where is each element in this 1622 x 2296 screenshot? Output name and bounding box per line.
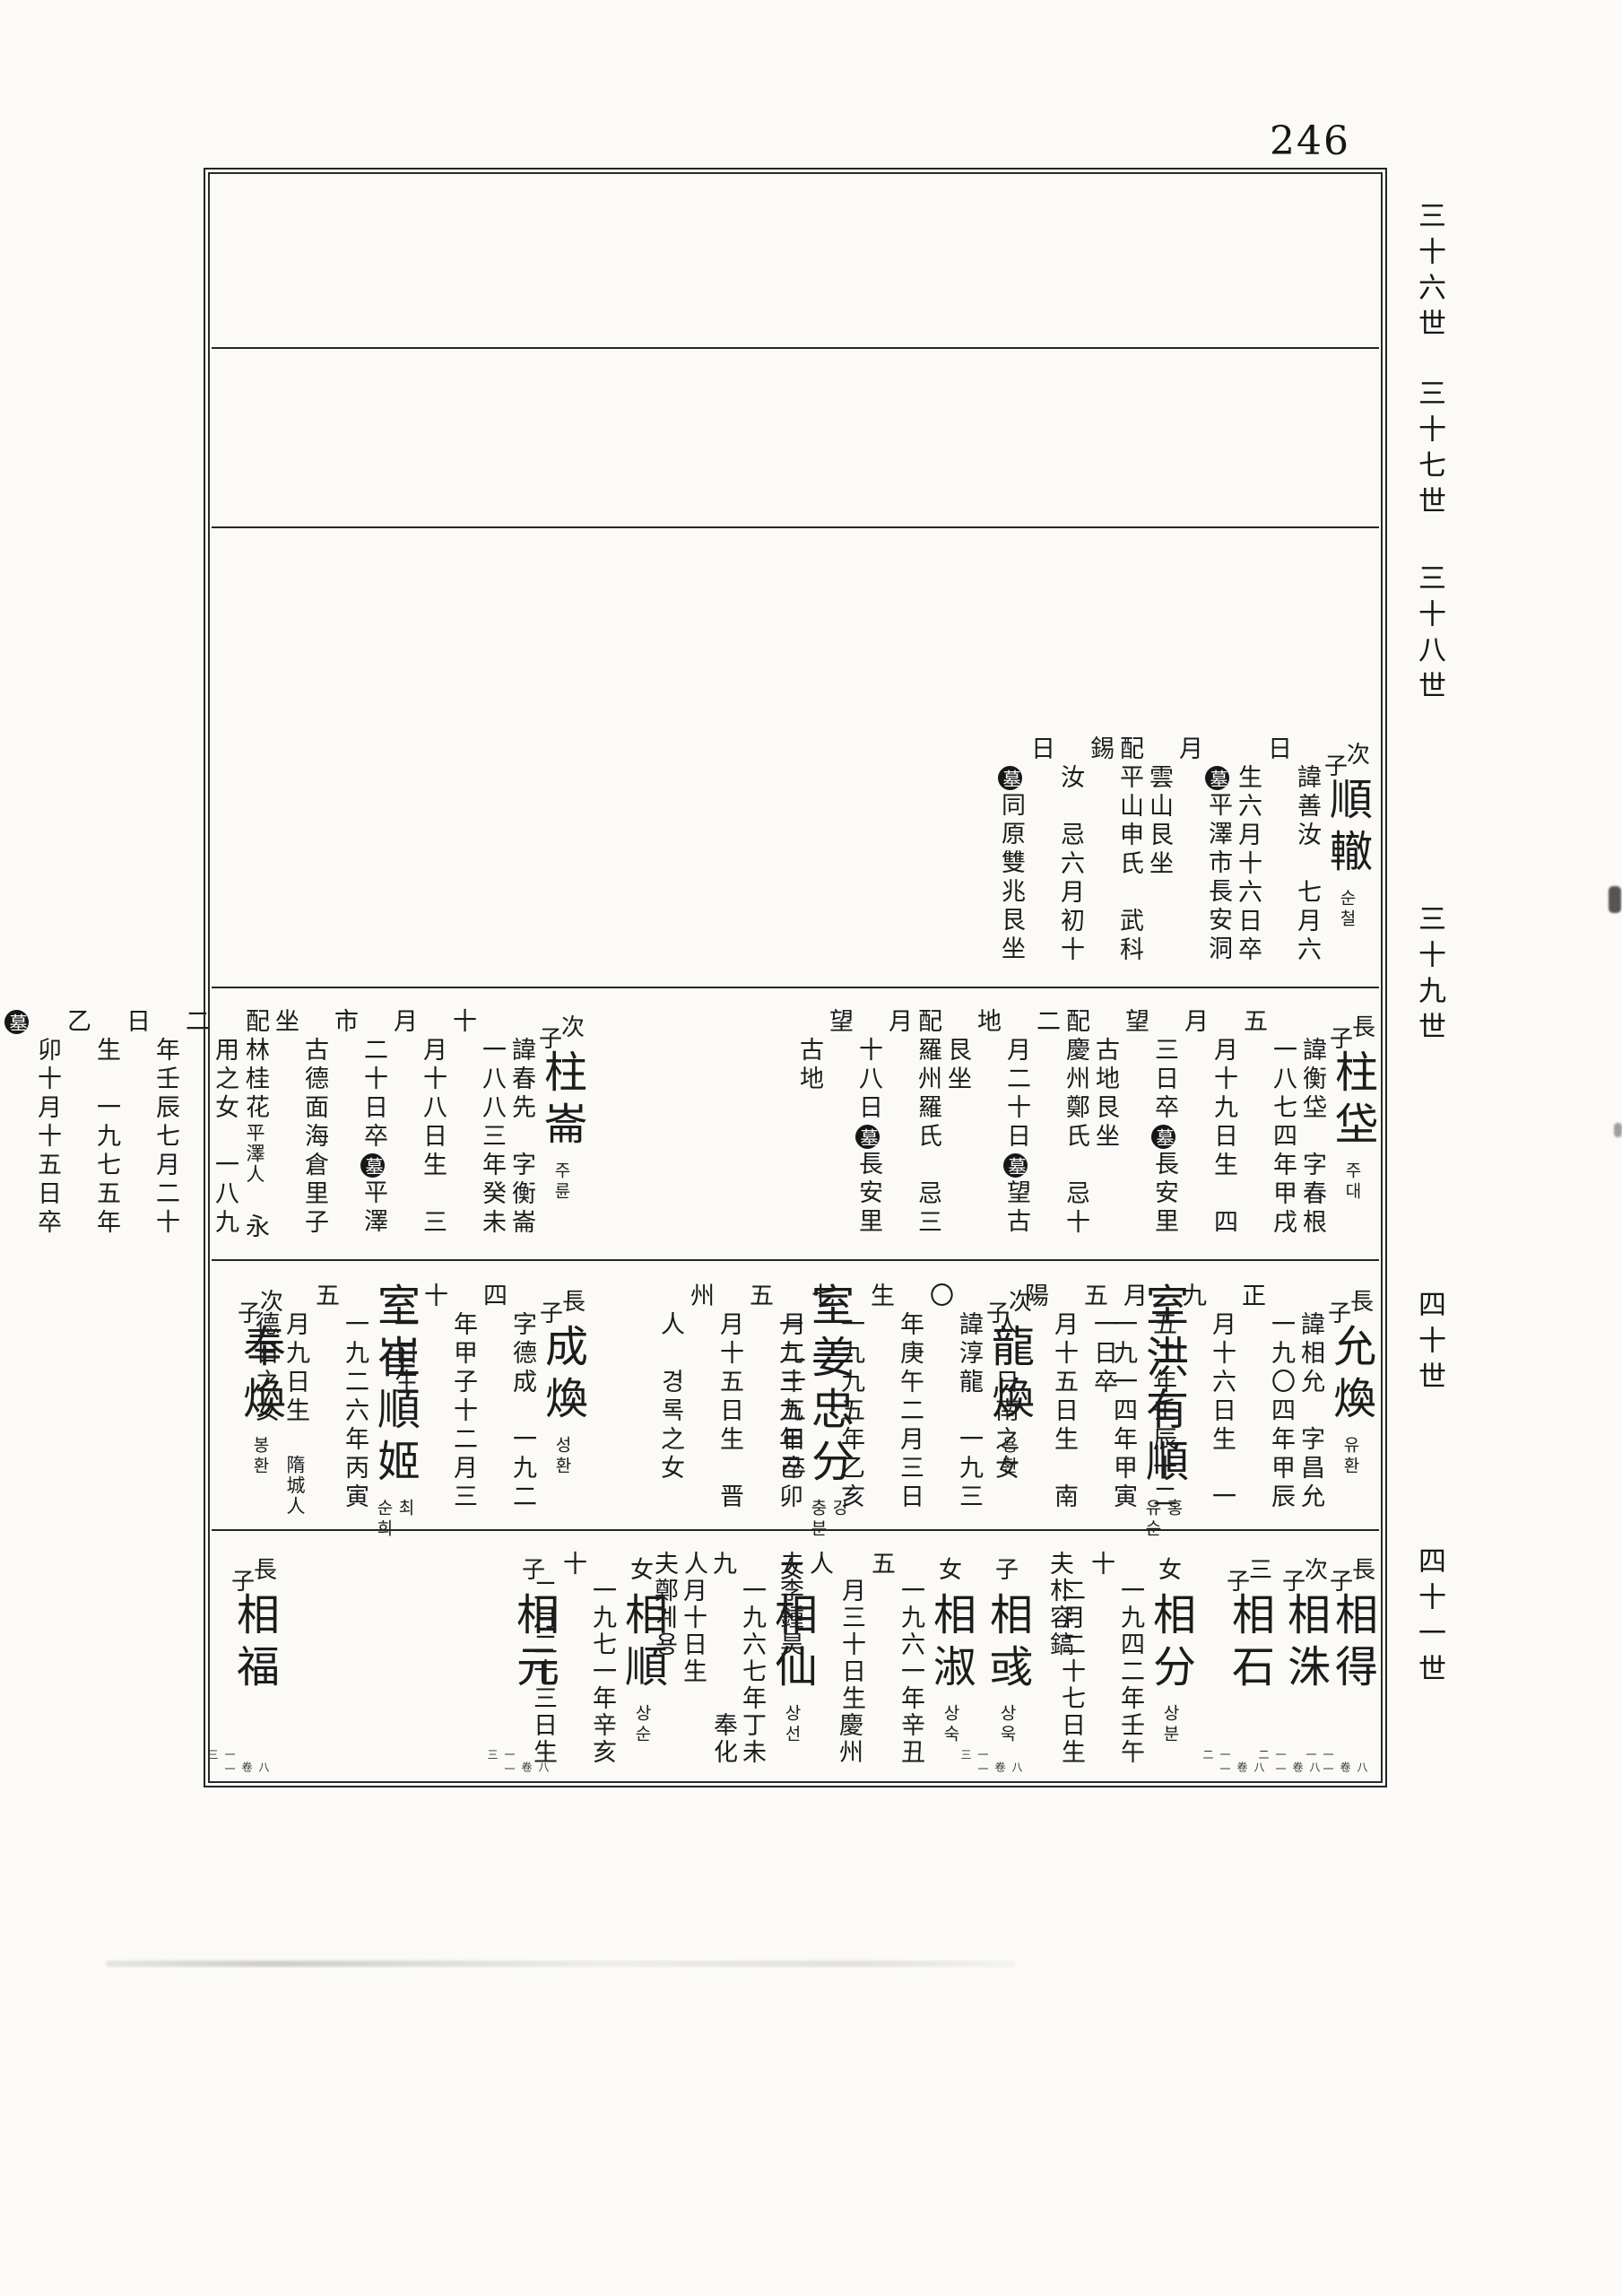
- detail-column: 一九六一年辛丑五: [866, 1551, 925, 1783]
- generation-label-38: 三十八世: [1409, 563, 1450, 707]
- entry-header-char: 子: [1328, 1301, 1351, 1326]
- hangul-gloss: 상분: [1159, 1704, 1181, 1745]
- detail-column: 諱衡垈 字春根: [1297, 1008, 1327, 1259]
- hangul-gloss-column: 순철: [1336, 889, 1357, 930]
- person-name: 成煥: [537, 1324, 587, 1428]
- detail-column: 一九四二年壬午十: [1086, 1551, 1145, 1783]
- hangul-gloss-column: 주대: [1341, 1161, 1363, 1203]
- entry-header: 長子: [1327, 1017, 1377, 1044]
- detail-column: 月十九日生 四月: [1179, 1008, 1238, 1259]
- name-column: 子相元: [508, 1560, 559, 1696]
- detail-column: 古地: [794, 1008, 824, 1259]
- name-column: 子相彧상욱: [982, 1560, 1032, 1745]
- entry-header-char: 女: [939, 1558, 962, 1583]
- grave-marker-icon: 墓: [4, 1010, 29, 1034]
- entry-details: 諱善汝 七月六日 生六月十六日卒 墓平澤市長安洞月 雲山艮坐配平山申氏 武科錫 …: [996, 735, 1322, 987]
- entry-header: 次子: [1279, 1560, 1330, 1587]
- hangul-gloss: 상순: [631, 1704, 653, 1745]
- hangul-gloss-column: 주륜: [551, 1161, 572, 1203]
- hangul-gloss: 유환: [1340, 1436, 1361, 1477]
- detail-column: 卯十月十五日卒墓: [3, 1008, 62, 1259]
- detail-column: 艮坐: [942, 1008, 972, 1259]
- detail-column: 一九七一年辛亥十: [558, 1551, 617, 1783]
- grave-marker-icon: 墓: [360, 1153, 385, 1178]
- person-name: 柱垈: [1327, 1049, 1377, 1153]
- hangul-gloss: 상숙: [940, 1704, 961, 1745]
- detail-column: 月十八日生 三月: [388, 1008, 447, 1259]
- person-name: 相福: [229, 1592, 279, 1696]
- person-name: 室洪有順: [1138, 1283, 1188, 1491]
- scan-artifact-streak: [106, 1961, 1016, 1967]
- detail-column: 三日卒墓長安里望: [1120, 1008, 1179, 1259]
- name-column: 次子奉煥봉환: [235, 1291, 285, 1477]
- generation-label-36: 三十六世: [1409, 201, 1450, 344]
- name-column: 次子龍煥용환: [984, 1291, 1034, 1477]
- grave-marker-icon: 墓: [1151, 1125, 1175, 1149]
- detail-column: 夫朴容鎬: [1045, 1551, 1074, 1658]
- entry-header-char: 子: [1330, 1570, 1353, 1595]
- hangul-gloss-column: 상선: [781, 1704, 802, 1745]
- person-name: 順轍: [1322, 777, 1372, 881]
- detail-column: 配平山申氏 武科錫: [1085, 735, 1144, 987]
- entry-header-char: 長: [1352, 1015, 1375, 1040]
- entry-header-char: 次: [260, 1290, 283, 1315]
- detail-column: 月十五日生 晋州: [685, 1283, 744, 1529]
- detail-column: 古德面海倉里子坐: [270, 1008, 329, 1259]
- person-name: 相元: [508, 1592, 559, 1696]
- hangul-gloss: 봉환: [249, 1436, 271, 1477]
- detail-column: 諱相允 字昌允: [1296, 1283, 1325, 1529]
- detail-column: 奉化人: [679, 1551, 738, 1783]
- person-name: 室姜忠分: [803, 1283, 854, 1491]
- entry-details: 諱衡垈 字春根 一八七四年甲戌五 月十九日生 四月 三日卒墓長安里望 古地艮坐配…: [794, 1008, 1327, 1259]
- detail-column: 一九一四年甲寅五: [1079, 1283, 1138, 1529]
- entry-header: 女: [1145, 1560, 1195, 1587]
- person-name: 相得: [1327, 1592, 1377, 1696]
- detail-column: 用之女 一八九二: [180, 1008, 239, 1259]
- detail-column: 諱善汝 七月六日: [1262, 735, 1322, 987]
- hangul-gloss: 상욱: [996, 1704, 1018, 1745]
- name-column: 次子相洙: [1279, 1560, 1330, 1696]
- detail-column: 一八七四年甲戌五: [1238, 1008, 1297, 1259]
- hangul-gloss: 주륜: [551, 1161, 572, 1203]
- person-name: 室崔順姬: [369, 1283, 420, 1491]
- hangul-gloss-column: 성환: [551, 1436, 573, 1477]
- detail-column: 配慶州鄭氏 忌十二: [1031, 1008, 1090, 1259]
- detail-column: 字德成 一九二四: [478, 1283, 537, 1529]
- name-column: 女相淑상숙: [925, 1560, 976, 1745]
- name-column: 長子相福: [229, 1560, 279, 1696]
- generation-row-三十九世: 長子柱垈주대 諱衡垈 字春根 一八七四年甲戌五 月十九日生 四月 三日卒墓長安里…: [212, 987, 1379, 1259]
- name-column: 女相仙상선: [767, 1560, 817, 1745]
- generation-label-40: 四十世: [1409, 1290, 1450, 1397]
- volume-page-ref-column: 八卷: [238, 1749, 272, 1783]
- entry-header-char: 子: [1227, 1570, 1250, 1595]
- entry-header: 長子: [1325, 1291, 1375, 1318]
- entry-header-char: 子: [995, 1558, 1019, 1583]
- genealogy-book-page: { "page_number": "246", "margin_labels":…: [0, 0, 1622, 2296]
- detail-column: 生 一九七五年乙: [62, 1008, 121, 1259]
- entry-header-char: 子: [231, 1570, 255, 1595]
- volume-page-ref-column: 一一二: [1199, 1749, 1233, 1783]
- entry-header-char: 子: [986, 1301, 1010, 1326]
- small-annotation: 平澤人: [244, 1123, 265, 1185]
- generation-label-41: 四十一世: [1409, 1546, 1450, 1690]
- hangul-gloss-column: 상욱: [996, 1704, 1018, 1745]
- entry-header-char: 子: [238, 1301, 261, 1326]
- entry-header-char: 次: [1305, 1558, 1328, 1583]
- person-name: 相分: [1145, 1592, 1195, 1696]
- entry-details: 諱春先 字衡崙 一八八三年癸未十 月十八日生 三月 二十日卒墓平澤市 古德面海倉…: [3, 1008, 536, 1259]
- person-name: 允煥: [1325, 1324, 1375, 1428]
- person-name: 相石: [1224, 1592, 1274, 1696]
- person-name: 相洙: [1279, 1592, 1330, 1696]
- grave-marker-icon: 墓: [1003, 1153, 1028, 1178]
- volume-page-ref: 八卷一一三: [204, 1749, 272, 1783]
- entry-header-char: 女: [780, 1558, 803, 1583]
- person-name: 相淑: [925, 1592, 976, 1696]
- entry-header: 次子: [1322, 744, 1372, 771]
- person-name: 相彧: [982, 1592, 1032, 1696]
- detail-column: 諱春先 字衡崙: [507, 1008, 536, 1259]
- detail-column: 配羅州羅氏 忌三月: [883, 1008, 942, 1259]
- detail-column: 古地艮坐: [1090, 1008, 1120, 1259]
- entry-header: 長子: [537, 1291, 587, 1318]
- detail-column: 月二十日墓望古地: [972, 1008, 1031, 1259]
- name-column: 室崔順姬최순희: [369, 1277, 420, 1540]
- volume-page-ref-column: 八卷: [1336, 1749, 1370, 1783]
- name-column: 長子柱垈주대: [1327, 1017, 1377, 1203]
- generation-label-37: 三十七世: [1409, 378, 1450, 522]
- name-column: 長子成煥성환: [537, 1291, 587, 1477]
- page-number: 246: [1270, 118, 1350, 164]
- entry-header: 長子: [229, 1560, 279, 1587]
- generation-label-39: 三十九世: [1409, 904, 1450, 1048]
- person-name: 相仙: [767, 1592, 817, 1696]
- detail-column: 生六月十六日卒: [1233, 735, 1262, 987]
- detail-column: 一九三九年己卯五: [744, 1283, 803, 1529]
- entry-header-char: 子: [540, 1301, 563, 1326]
- detail-column: 一九〇四年甲辰正: [1236, 1283, 1296, 1529]
- detail-column: 十八日墓長安里望: [824, 1008, 883, 1259]
- detail-column: 諱淳龍 一九三〇: [924, 1283, 984, 1529]
- volume-page-ref: 八卷一一三: [483, 1749, 551, 1783]
- table-rows-wrap: 次子順轍순철 諱善汝 七月六日 生六月十六日卒 墓平澤市長安洞月 雲山艮坐配平山…: [212, 176, 1379, 1779]
- hangul-gloss: 주대: [1341, 1161, 1363, 1203]
- hangul-gloss: 순철: [1336, 889, 1357, 930]
- hangul-gloss-column: 용환: [998, 1436, 1019, 1477]
- hangul-gloss: 성환: [551, 1436, 573, 1477]
- entry-header: 子: [508, 1560, 559, 1587]
- entry-header-char: 長: [254, 1558, 277, 1583]
- volume-page-ref-column: 八卷: [1233, 1749, 1267, 1783]
- generation-row-三十六世: [212, 176, 1379, 347]
- entry-header: 次子: [536, 1017, 586, 1044]
- name-column: 長子允煥유환: [1325, 1291, 1375, 1477]
- detail-column: 年甲子十二月三十: [419, 1283, 478, 1529]
- entry-header: 長子: [1327, 1560, 1377, 1587]
- detail-column: 人 경록之女: [655, 1283, 685, 1529]
- hangul-gloss-column: 상순: [631, 1704, 653, 1745]
- person-name: 相順: [617, 1592, 667, 1696]
- entry-header: 子: [982, 1560, 1032, 1587]
- volume-page-ref: 八卷一一三: [957, 1749, 1025, 1783]
- entry-header-char: 三: [1249, 1558, 1272, 1583]
- entry-header-char: 子: [522, 1558, 545, 1583]
- detail-column: 二十日卒墓平澤市: [329, 1008, 388, 1259]
- volume-page-ref-column: 一一三: [483, 1749, 517, 1783]
- scan-edge-smudge: [1614, 1123, 1622, 1137]
- detail-column: 年庚午二月三日生: [865, 1283, 924, 1529]
- entry-header-char: 子: [1282, 1570, 1305, 1595]
- entry-header: 三子: [1224, 1560, 1274, 1587]
- detail-column: 汝 忌六月初十日: [1026, 735, 1085, 987]
- name-column: 室洪有順홍유순: [1138, 1277, 1188, 1540]
- person-name: 龍煥: [984, 1324, 1034, 1428]
- detail-column: 墓平澤市長安洞月: [1174, 735, 1233, 987]
- entry-header-char: 女: [1158, 1558, 1182, 1583]
- hangul-gloss-column: 상분: [1159, 1704, 1181, 1745]
- name-column: 女相分상분: [1145, 1560, 1195, 1745]
- grave-marker-icon: 墓: [855, 1125, 880, 1149]
- name-column: 三子相石: [1224, 1560, 1274, 1696]
- name-column: 次子順轍순철: [1322, 744, 1372, 930]
- hangul-gloss-column: 봉환: [249, 1436, 271, 1477]
- small-annotation: 隋城人: [284, 1455, 306, 1517]
- volume-page-ref: 八卷一一二: [1199, 1749, 1267, 1783]
- entry-details: 一九三九年己卯五 月十五日生 晋州 人 경록之女: [655, 1283, 803, 1529]
- person-name: 柱崙: [536, 1049, 586, 1153]
- entry-header-char: 子: [1330, 1027, 1353, 1052]
- entry-header-char: 子: [539, 1027, 562, 1052]
- entry-header: 次子: [984, 1291, 1034, 1318]
- generation-row-三十七世: [212, 347, 1379, 526]
- hangul-gloss: 용환: [998, 1436, 1019, 1477]
- detail-column: 一九二六年丙寅五: [310, 1283, 369, 1529]
- generation-row-三十八世: 次子順轍순철 諱善汝 七月六日 生六月十六日卒 墓平澤市長安洞月 雲山艮坐配平山…: [212, 526, 1379, 987]
- person-name: 奉煥: [235, 1324, 285, 1428]
- volume-page-ref-column: 一一三: [957, 1749, 991, 1783]
- grave-marker-icon: 墓: [998, 766, 1022, 790]
- name-column: 次子柱崙주륜: [536, 1017, 586, 1203]
- detail-column: 雲山艮坐: [1144, 735, 1174, 987]
- hangul-gloss: 상선: [781, 1704, 802, 1745]
- grave-marker-icon: 墓: [1205, 766, 1229, 790]
- generation-row-四十一世: 長子相得八卷一一一次子相洙八卷一一二三子相石八卷一一二女相分상분 一九四二年壬午…: [212, 1529, 1379, 1783]
- entry-header: 女: [925, 1560, 976, 1587]
- scan-edge-smudge: [1609, 886, 1621, 913]
- hangul-gloss-column: 유환: [1340, 1436, 1361, 1477]
- volume-page-ref-column: 八卷: [991, 1749, 1025, 1783]
- entry-header-char: 次: [1347, 743, 1370, 768]
- entry-header-char: 子: [1324, 754, 1348, 779]
- entry-header: 女: [617, 1560, 667, 1587]
- volume-page-ref-column: 八卷: [517, 1749, 551, 1783]
- entry-header-char: 長: [1350, 1290, 1374, 1315]
- detail-column: 墓同原雙兆艮坐: [996, 735, 1026, 987]
- hangul-gloss-column: 상숙: [940, 1704, 961, 1745]
- volume-page-ref-column: 一一三: [204, 1749, 238, 1783]
- entry-header: 女: [767, 1560, 817, 1587]
- detail-column: 一八八三年癸未十: [447, 1008, 507, 1259]
- entry-details: 夫朴容鎬: [1045, 1551, 1074, 1658]
- entry-header-char: 女: [630, 1558, 654, 1583]
- name-column: 長子相得: [1327, 1560, 1377, 1696]
- entry-header-char: 次: [561, 1015, 585, 1040]
- detail-column: 年壬辰七月二十日: [121, 1008, 180, 1259]
- genealogy-table: 次子順轍순철 諱善汝 七月六日 生六月十六日卒 墓平澤市長安洞月 雲山艮坐配平山…: [204, 168, 1387, 1787]
- name-column: 女相順상순: [617, 1560, 667, 1745]
- detail-column: 配林桂花平澤人 永: [239, 1008, 270, 1259]
- entry-header: 次子: [235, 1291, 285, 1318]
- entry-header-char: 次: [1009, 1290, 1032, 1315]
- entry-header-char: 長: [562, 1290, 585, 1315]
- generation-row-四十世: 長子允煥유환 諱相允 字昌允 一九〇四年甲辰正 月十六日生 一九 五二年壬辰十二…: [212, 1259, 1379, 1529]
- entry-header-char: 長: [1352, 1558, 1375, 1583]
- volume-page-ref-column: 八卷: [1288, 1749, 1323, 1783]
- name-column: 室姜忠分강충분: [803, 1277, 854, 1540]
